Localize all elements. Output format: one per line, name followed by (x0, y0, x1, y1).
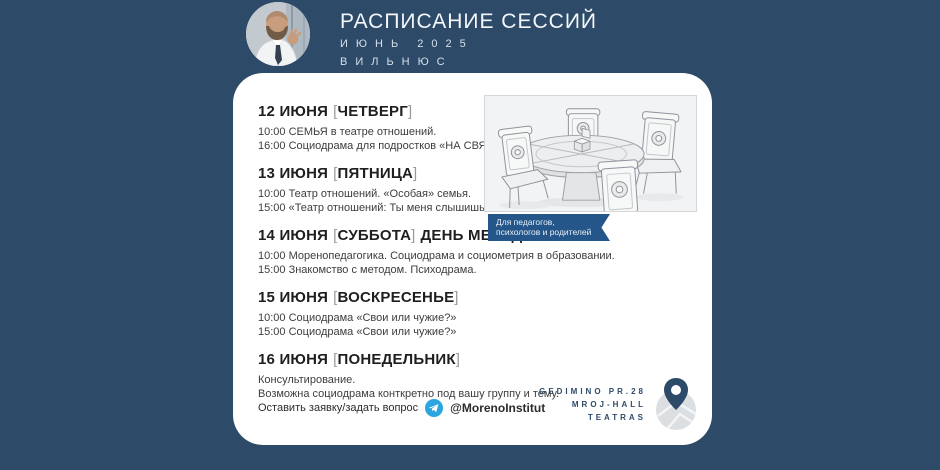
session-line: 15:00 Социодрама «Свои или чужие?» (258, 326, 698, 340)
session-day: ЧЕТВЕРГ (338, 103, 408, 120)
session-date: 16 ИЮНЯ (258, 351, 328, 368)
session-date: 13 ИЮНЯ (258, 165, 328, 182)
session-entry-15-june: 15 ИЮНЯ[ВОСКРЕСЕНЬЕ] 10:00 Социодрама «С… (258, 289, 698, 339)
session-line: 15:00 Знакомство с методом. Психодрама. (258, 264, 698, 278)
presenter-photo-sketch (246, 2, 310, 66)
header-block: РАСПИСАНИЕ СЕССИЙ ИЮНЬ 2025 ВИЛЬНЮС (340, 10, 597, 70)
presenter-photo (246, 2, 310, 66)
session-day: СУББОТА (338, 227, 412, 244)
poster-background: РАСПИСАНИЕ СЕССИЙ ИЮНЬ 2025 ВИЛЬНЮС 12 И… (0, 0, 940, 470)
audience-badge: Для педагогов, психологов и родителей (488, 214, 610, 241)
schedule-card: 12 ИЮНЯ[ЧЕТВЕРГ] 10:00 СЕМЬЯ в театре от… (233, 73, 712, 445)
session-day: ПЯТНИЦА (338, 165, 414, 182)
subtitle-month: ИЮНЬ 2025 (340, 36, 597, 52)
session-date-heading: 14 ИЮНЯ[СУББОТА]ДЕНЬ МЕТОДА (258, 227, 698, 244)
session-date: 14 ИЮНЯ (258, 227, 328, 244)
session-date: 15 ИЮНЯ (258, 289, 328, 306)
bracket-close: ] (413, 165, 417, 182)
session-line: 10:00 Социодрама «Свои или чужие?» (258, 312, 698, 326)
telegram-icon[interactable] (425, 399, 443, 417)
bracket-close: ] (456, 351, 460, 368)
table-and-chairs-sketch (485, 96, 696, 211)
venue-location: GEDIMINO PR.28 MROJ-HALL TEATRAS (539, 376, 700, 432)
cta-text: Оставить заявку/задать вопрос (258, 402, 418, 414)
session-line: 10:00 Моренопедагогика. Социодрама и соц… (258, 250, 698, 264)
venue-name: TEATRAS (539, 411, 646, 424)
session-day: ПОНЕДЕЛЬНИК (338, 351, 456, 368)
session-date-heading: 16 ИЮНЯ[ПОНЕДЕЛЬНИК] (258, 351, 698, 368)
page-title: РАСПИСАНИЕ СЕССИЙ (340, 10, 597, 34)
venue-hall: MROJ-HALL (539, 398, 646, 411)
venue-street: GEDIMINO PR.28 (539, 385, 646, 398)
bracket-close: ] (454, 289, 458, 306)
sketch-illustration (484, 95, 697, 212)
telegram-handle[interactable]: @MorenoInstitut (450, 401, 545, 415)
session-day: ВОСКРЕСЕНЬЕ (338, 289, 455, 306)
venue-address: GEDIMINO PR.28 MROJ-HALL TEATRAS (539, 385, 646, 424)
session-entry-14-june: 14 ИЮНЯ[СУББОТА]ДЕНЬ МЕТОДА 10:00 Морено… (258, 227, 698, 277)
contact-row: Оставить заявку/задать вопрос @MorenoIns… (258, 399, 545, 417)
session-date: 12 ИЮНЯ (258, 103, 328, 120)
location-pin-icon (652, 376, 700, 432)
session-date-heading: 15 ИЮНЯ[ВОСКРЕСЕНЬЕ] (258, 289, 698, 306)
bracket-close: ] (411, 227, 415, 244)
subtitle-city: ВИЛЬНЮС (340, 54, 597, 70)
bracket-close: ] (408, 103, 412, 120)
